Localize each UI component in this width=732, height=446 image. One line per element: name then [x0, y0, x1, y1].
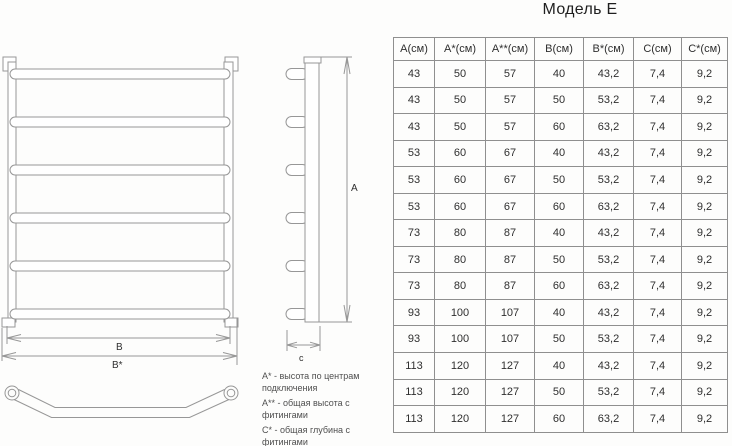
side-collector [305, 63, 319, 322]
table-cell: 63,2 [584, 193, 634, 220]
table-cell: 120 [435, 406, 486, 433]
rungs [10, 69, 230, 319]
table-cell: 60 [435, 167, 486, 194]
table-body: 4350574043,27,49,24350575053,27,49,24350… [394, 61, 728, 433]
table-cell: 7,4 [634, 273, 682, 300]
table-cell: 40 [535, 299, 584, 326]
table-cell: 43,2 [584, 61, 634, 88]
column-header: А(см) [394, 38, 435, 61]
bottom-view [5, 386, 238, 418]
table-cell: 53,2 [584, 246, 634, 273]
table-cell: 67 [486, 193, 535, 220]
table-cell: 40 [535, 140, 584, 167]
table-cell: 113 [394, 379, 435, 406]
table-cell: 57 [486, 114, 535, 141]
table-row: 4350574043,27,49,2 [394, 61, 728, 88]
table-cell: 120 [435, 379, 486, 406]
table-cell: 63,2 [584, 406, 634, 433]
table-cell: 7,4 [634, 220, 682, 247]
rung [10, 165, 230, 175]
column-header: А**(см) [486, 38, 535, 61]
column-header: В*(см) [584, 38, 634, 61]
table-cell: 9,2 [682, 273, 728, 300]
table-cell: 9,2 [682, 87, 728, 114]
collector-right [224, 62, 233, 322]
table-cell: 100 [435, 326, 486, 353]
legend-item: С* - общая глубина с фитингами [262, 424, 392, 446]
pipe-end-right [224, 386, 238, 400]
table-cell: 43 [394, 87, 435, 114]
table-cell: 63,2 [584, 114, 634, 141]
table-cell: 80 [435, 273, 486, 300]
table-cell: 40 [535, 61, 584, 88]
dimension-label-a: A [351, 183, 358, 194]
table-cell: 9,2 [682, 167, 728, 194]
table-row: 931001075053,27,49,2 [394, 326, 728, 353]
dimension-label-c: с [299, 353, 304, 363]
table-cell: 7,4 [634, 114, 682, 141]
table-cell: 7,4 [634, 379, 682, 406]
table-row: 5360675053,27,49,2 [394, 167, 728, 194]
table-cell: 87 [486, 220, 535, 247]
table-cell: 60 [435, 140, 486, 167]
dimensions-table: А(см)А*(см)А**(см)В(см)В*(см)С(см)С*(см)… [393, 37, 728, 433]
table-cell: 80 [435, 246, 486, 273]
dimension-label-b: B [116, 342, 123, 353]
table-cell: 80 [435, 220, 486, 247]
column-header: С(см) [634, 38, 682, 61]
table-cell: 7,4 [634, 326, 682, 353]
table-cell: 87 [486, 246, 535, 273]
front-view [2, 57, 238, 327]
table-cell: 113 [394, 406, 435, 433]
table-cell: 50 [435, 114, 486, 141]
table-cell: 107 [486, 299, 535, 326]
bottom-fitting-left [2, 318, 15, 327]
table-cell: 50 [435, 61, 486, 88]
table-cell: 9,2 [682, 61, 728, 88]
spec-sheet-page: B B* [0, 0, 732, 446]
table-cell: 93 [394, 299, 435, 326]
table-cell: 7,4 [634, 167, 682, 194]
rung [10, 309, 230, 319]
table-cell: 7,4 [634, 353, 682, 380]
table-cell: 67 [486, 140, 535, 167]
pipe-end-left [5, 386, 19, 400]
table-row: 1131201276063,27,49,2 [394, 406, 728, 433]
table-row: 7380876063,27,49,2 [394, 273, 728, 300]
table-cell: 50 [535, 326, 584, 353]
rung [10, 213, 230, 223]
column-header: В(см) [535, 38, 584, 61]
table-cell: 73 [394, 220, 435, 247]
table-cell: 113 [394, 353, 435, 380]
table-cell: 53,2 [584, 87, 634, 114]
curved-tube-top-edge [19, 390, 225, 408]
table-cell: 43 [394, 114, 435, 141]
table-cell: 100 [435, 299, 486, 326]
table-cell: 53 [394, 167, 435, 194]
table-cell: 43 [394, 61, 435, 88]
table-row: 4350576063,27,49,2 [394, 114, 728, 141]
table-row: 5360676063,27,49,2 [394, 193, 728, 220]
table-cell: 73 [394, 273, 435, 300]
table-cell: 7,4 [634, 246, 682, 273]
table-row: 7380874043,27,49,2 [394, 220, 728, 247]
side-top-fitting [304, 57, 321, 63]
table-cell: 60 [435, 193, 486, 220]
column-header: С*(см) [682, 38, 728, 61]
table-cell: 87 [486, 273, 535, 300]
table-cell: 9,2 [682, 326, 728, 353]
legend: А* - высота по центрам подключения А** -… [262, 370, 392, 446]
table-cell: 50 [535, 246, 584, 273]
pipe-bore-right [227, 389, 235, 397]
table-cell: 127 [486, 353, 535, 380]
table-cell: 60 [535, 193, 584, 220]
table-cell: 50 [535, 167, 584, 194]
table-cell: 43,2 [584, 299, 634, 326]
collector-left [8, 62, 16, 322]
pipe-bore-left [8, 389, 16, 397]
table-cell: 107 [486, 326, 535, 353]
table-cell: 60 [535, 406, 584, 433]
table-row: 1131201275053,27,49,2 [394, 379, 728, 406]
table-cell: 60 [535, 273, 584, 300]
side-view [286, 57, 321, 322]
dimension-label-b-star: B* [112, 360, 123, 371]
table-row: 5360674043,27,49,2 [394, 140, 728, 167]
table-row: 4350575053,27,49,2 [394, 87, 728, 114]
table-cell: 67 [486, 167, 535, 194]
table-cell: 9,2 [682, 114, 728, 141]
table-cell: 9,2 [682, 379, 728, 406]
table-cell: 57 [486, 87, 535, 114]
rung [10, 261, 230, 271]
table-cell: 53,2 [584, 167, 634, 194]
table-cell: 43,2 [584, 220, 634, 247]
table-cell: 40 [535, 220, 584, 247]
table-cell: 9,2 [682, 140, 728, 167]
table-cell: 50 [435, 87, 486, 114]
table-cell: 53 [394, 140, 435, 167]
table-cell: 9,2 [682, 220, 728, 247]
table-cell: 53,2 [584, 326, 634, 353]
table-cell: 63,2 [584, 273, 634, 300]
table-cell: 43,2 [584, 353, 634, 380]
table-cell: 43,2 [584, 140, 634, 167]
table-row: 7380875053,27,49,2 [394, 246, 728, 273]
column-header: А*(см) [435, 38, 486, 61]
table-cell: 9,2 [682, 193, 728, 220]
legend-item: А** - общая высота с фитингами [262, 397, 392, 421]
table-cell: 93 [394, 326, 435, 353]
table-row: 1131201274043,27,49,2 [394, 353, 728, 380]
table-cell: 50 [535, 87, 584, 114]
table-cell: 9,2 [682, 246, 728, 273]
table-cell: 127 [486, 406, 535, 433]
table-header-row: А(см)А*(см)А**(см)В(см)В*(см)С(см)С*(см) [394, 38, 728, 61]
table-cell: 57 [486, 61, 535, 88]
table-cell: 7,4 [634, 299, 682, 326]
table-cell: 7,4 [634, 87, 682, 114]
dimension-c: с [287, 326, 320, 363]
table-cell: 7,4 [634, 140, 682, 167]
legend-item: А* - высота по центрам подключения [262, 370, 392, 394]
table-cell: 7,4 [634, 193, 682, 220]
page-title: Модель Е [430, 1, 730, 19]
table-cell: 7,4 [634, 61, 682, 88]
rung [10, 69, 230, 79]
table-cell: 53,2 [584, 379, 634, 406]
table-cell: 60 [535, 114, 584, 141]
rung [10, 117, 230, 127]
table-cell: 7,4 [634, 406, 682, 433]
table-cell: 50 [535, 379, 584, 406]
table-cell: 9,2 [682, 406, 728, 433]
table-cell: 127 [486, 379, 535, 406]
bottom-fitting-right [225, 318, 238, 327]
table-cell: 9,2 [682, 299, 728, 326]
dimension-b: B [7, 326, 230, 353]
table-cell: 40 [535, 353, 584, 380]
table-cell: 120 [435, 353, 486, 380]
table-cell: 73 [394, 246, 435, 273]
table-cell: 53 [394, 193, 435, 220]
table-row: 931001074043,27,49,2 [394, 299, 728, 326]
table-cell: 9,2 [682, 353, 728, 380]
